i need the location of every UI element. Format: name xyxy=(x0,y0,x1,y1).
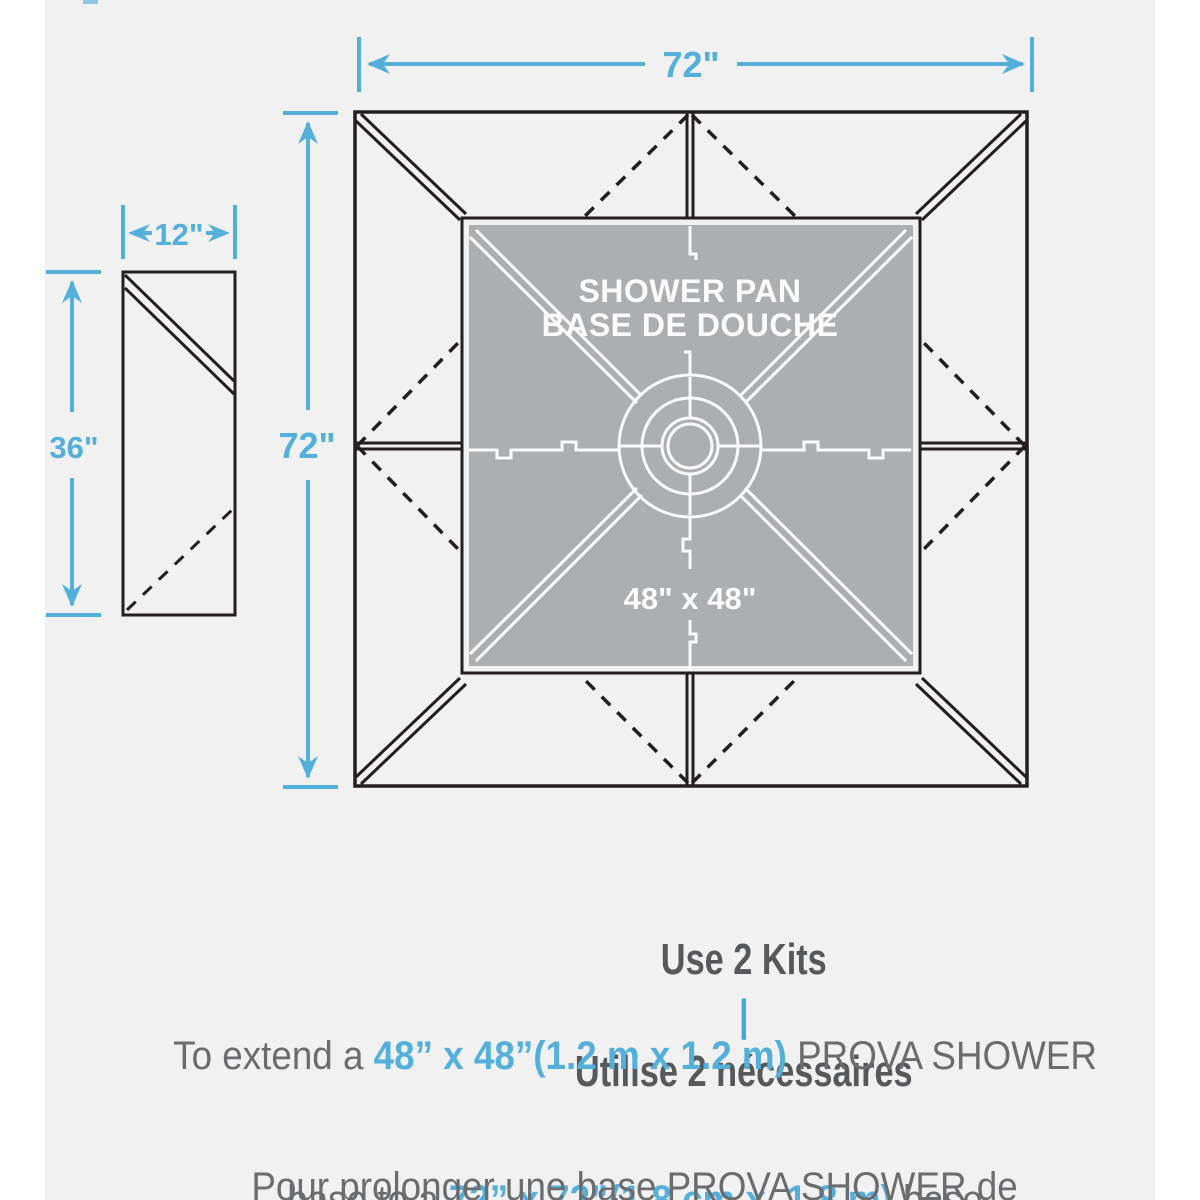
shower-pan: SHOWER PAN BASE DE DOUCHE 48" x 48" xyxy=(469,225,913,668)
pan-size-label: 48" x 48" xyxy=(624,581,757,616)
pan-label-line1: SHOWER PAN xyxy=(578,273,801,309)
pan-label-line2: BASE DE DOUCHE xyxy=(542,307,839,343)
extension-piece xyxy=(123,272,235,615)
dimension-top-72: 72" xyxy=(359,37,1032,92)
dim-top-label: 72" xyxy=(662,44,719,85)
dim-left-label: 72" xyxy=(278,425,335,466)
kits-heading: Use 2 Kits | Utilise 2 nécessaires xyxy=(136,820,1200,876)
dim-piece-width-label: 12" xyxy=(154,217,203,252)
dimension-piece-12: 12" xyxy=(123,205,235,259)
piece-outline xyxy=(123,272,235,615)
dimension-left-72: 72" xyxy=(278,113,338,787)
piece-dashed-line xyxy=(127,509,233,610)
instruction-sheet: SHOWER PAN BASE DE DOUCHE 48" x 48" 72" … xyxy=(0,0,1200,1200)
fr-line1-text: Pour prolonger une base PROVA SHOWER de xyxy=(252,1165,1018,1200)
instructions-french: Pour prolonger une base PROVA SHOWER de … xyxy=(80,1070,1190,1200)
dimension-piece-36: 36" xyxy=(46,272,101,615)
dim-piece-height-label: 36" xyxy=(49,430,98,465)
